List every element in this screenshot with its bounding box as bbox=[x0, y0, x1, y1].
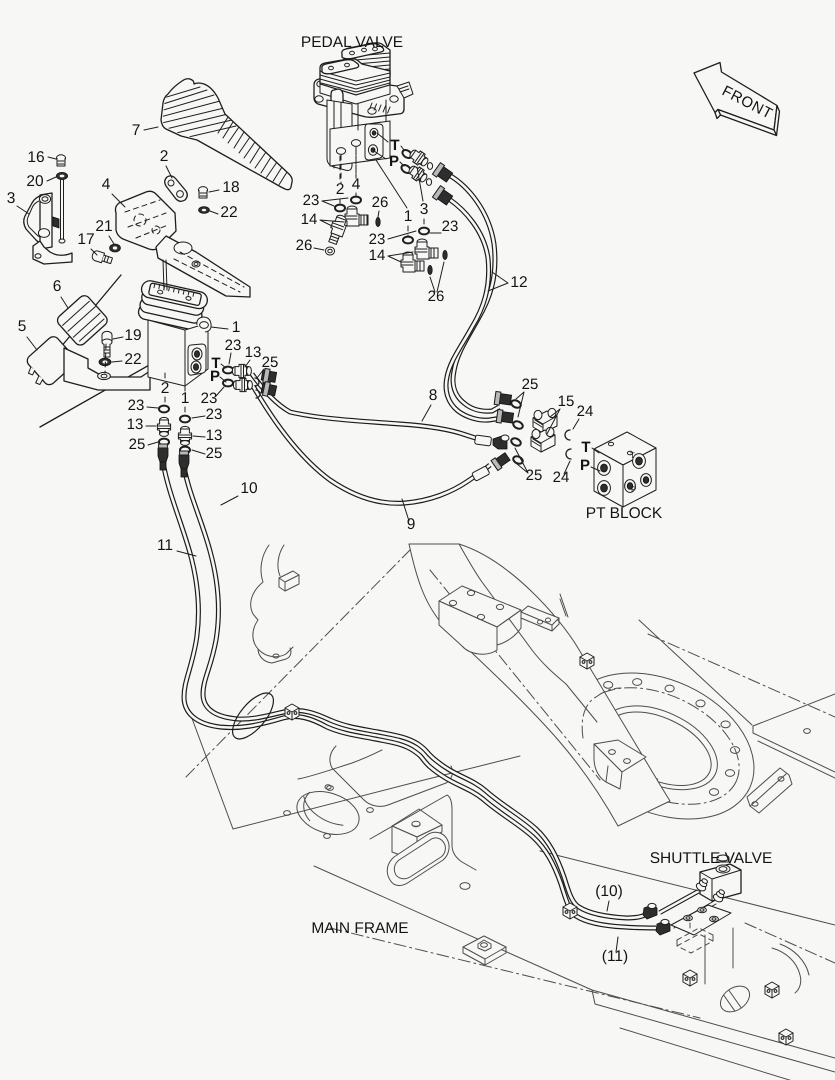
svg-text:16: 16 bbox=[27, 149, 44, 166]
svg-text:2: 2 bbox=[161, 380, 170, 397]
svg-text:4: 4 bbox=[102, 176, 111, 193]
svg-text:15: 15 bbox=[558, 393, 575, 410]
svg-text:20: 20 bbox=[26, 173, 44, 190]
svg-text:3: 3 bbox=[7, 190, 16, 207]
svg-text:23: 23 bbox=[303, 192, 320, 209]
svg-text:P: P bbox=[631, 485, 636, 494]
svg-text:8: 8 bbox=[429, 387, 438, 404]
svg-text:14: 14 bbox=[369, 247, 386, 264]
svg-text:T: T bbox=[630, 451, 635, 460]
svg-text:24: 24 bbox=[553, 469, 570, 486]
svg-text:26: 26 bbox=[428, 288, 445, 305]
svg-text:SHUTTLE VALVE: SHUTTLE VALVE bbox=[650, 850, 773, 867]
svg-text:22: 22 bbox=[124, 351, 141, 368]
svg-text:2: 2 bbox=[160, 148, 169, 165]
svg-text:1: 1 bbox=[232, 319, 241, 336]
svg-text:PEDAL VALVE: PEDAL VALVE bbox=[301, 34, 403, 51]
svg-text:11: 11 bbox=[157, 537, 173, 554]
svg-text:26: 26 bbox=[372, 194, 389, 211]
svg-text:24: 24 bbox=[577, 403, 594, 420]
svg-text:13: 13 bbox=[245, 344, 262, 361]
svg-text:23: 23 bbox=[442, 218, 459, 235]
svg-text:5: 5 bbox=[18, 318, 27, 335]
svg-text:1: 1 bbox=[181, 390, 190, 407]
svg-text:6: 6 bbox=[53, 278, 62, 295]
svg-text:13: 13 bbox=[127, 416, 144, 433]
svg-text:14: 14 bbox=[301, 211, 318, 228]
svg-text:25: 25 bbox=[526, 467, 543, 484]
svg-text:25: 25 bbox=[522, 376, 539, 393]
svg-text:23: 23 bbox=[369, 231, 386, 248]
svg-text:23: 23 bbox=[225, 337, 242, 354]
svg-text:17: 17 bbox=[77, 231, 94, 248]
svg-text:(11): (11) bbox=[602, 948, 628, 965]
svg-text:1: 1 bbox=[404, 208, 413, 225]
svg-text:12: 12 bbox=[510, 274, 527, 291]
svg-text:(10): (10) bbox=[595, 883, 623, 900]
svg-text:P: P bbox=[389, 153, 399, 170]
svg-text:7: 7 bbox=[132, 122, 141, 139]
svg-text:22: 22 bbox=[220, 204, 237, 221]
svg-text:MAIN FRAME: MAIN FRAME bbox=[311, 920, 408, 937]
svg-text:21: 21 bbox=[95, 218, 112, 235]
svg-text:25: 25 bbox=[206, 445, 223, 462]
svg-text:4: 4 bbox=[352, 176, 361, 193]
svg-text:3: 3 bbox=[420, 201, 429, 218]
svg-text:10: 10 bbox=[240, 480, 258, 497]
svg-text:23: 23 bbox=[201, 390, 218, 407]
svg-text:23: 23 bbox=[128, 397, 145, 414]
svg-text:2: 2 bbox=[336, 181, 345, 198]
svg-text:PT BLOCK: PT BLOCK bbox=[586, 505, 663, 522]
svg-text:26: 26 bbox=[296, 237, 313, 254]
svg-text:23: 23 bbox=[206, 406, 223, 423]
svg-text:19: 19 bbox=[124, 327, 141, 344]
svg-text:T: T bbox=[390, 137, 399, 154]
svg-text:P: P bbox=[210, 368, 220, 385]
svg-text:25: 25 bbox=[262, 354, 279, 371]
svg-text:18: 18 bbox=[222, 179, 239, 196]
svg-text:13: 13 bbox=[206, 427, 223, 444]
svg-text:25: 25 bbox=[129, 436, 146, 453]
svg-text:T: T bbox=[581, 439, 590, 456]
svg-text:P: P bbox=[580, 457, 590, 474]
